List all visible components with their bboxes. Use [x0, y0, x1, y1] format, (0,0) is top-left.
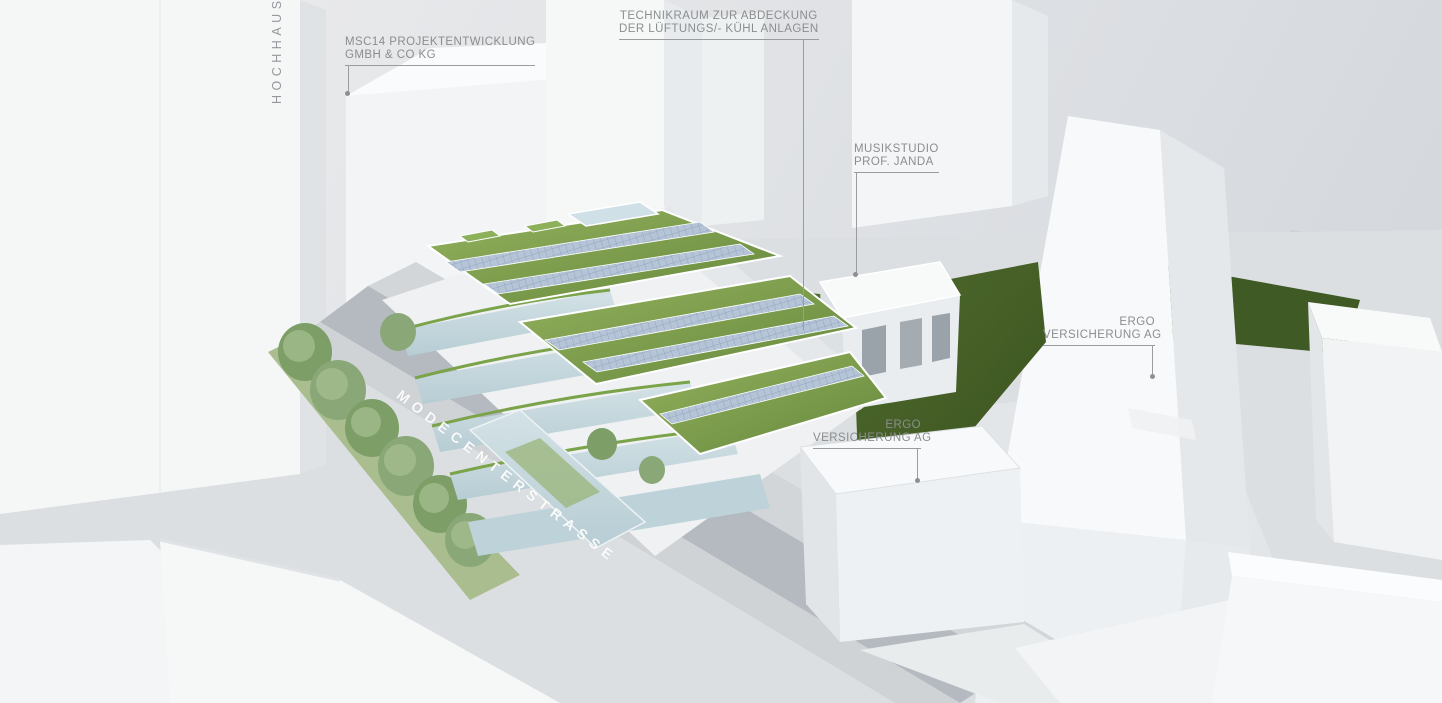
ergo-right-line2: VERSICHERUNG AG	[1043, 329, 1155, 342]
leader-musikstudio	[856, 173, 857, 274]
musikstudio-line2: PROF. JANDA	[854, 156, 939, 169]
callout-technikraum: TECHNIKRAUM ZUR ABDECKUNG DER LÜFTUNGS/-…	[619, 10, 819, 40]
street-name-text: MODECENTERSTRASSE	[393, 388, 620, 567]
technikraum-line2: DER LÜFTUNGS/- KÜHL ANLAGEN	[619, 23, 819, 36]
leader-dot-musikstudio	[853, 272, 858, 277]
leader-ergo-center	[917, 449, 918, 480]
leader-technikraum	[803, 40, 804, 330]
msc14-line2: GMBH & CO KG	[345, 49, 535, 62]
callout-ergo-right: ERGO VERSICHERUNG AG	[1043, 316, 1155, 346]
architectural-site-rendering: HOCHHAUS MSC14 PROJEKTENTWICKLUNG GMBH &…	[0, 0, 1442, 703]
msc14-line1: MSC14 PROJEKTENTWICKLUNG	[345, 36, 535, 49]
callout-musikstudio: MUSIKSTUDIO PROF. JANDA	[854, 143, 939, 173]
ergo-right-line1: ERGO	[1043, 316, 1155, 329]
ergo-center-line1: ERGO	[813, 419, 921, 432]
musikstudio-line1: MUSIKSTUDIO	[854, 143, 939, 156]
hochhaus-text: HOCHHAUS	[270, 0, 284, 104]
leader-msc14	[348, 66, 349, 94]
annotation-overlay: HOCHHAUS MSC14 PROJEKTENTWICKLUNG GMBH &…	[0, 0, 1442, 703]
leader-dot-ergo-center	[915, 478, 920, 483]
technikraum-line1: TECHNIKRAUM ZUR ABDECKUNG	[619, 10, 819, 23]
leader-ergo-right	[1152, 346, 1153, 376]
leader-dot-ergo-right	[1150, 374, 1155, 379]
callout-ergo-center: ERGO VERSICHERUNG AG	[813, 419, 921, 449]
callout-msc14: MSC14 PROJEKTENTWICKLUNG GMBH & CO KG	[345, 36, 535, 66]
label-hochhaus: HOCHHAUS	[270, 4, 284, 104]
street-name-label: MODECENTERSTRASSE	[393, 388, 620, 567]
leader-dot-msc14	[345, 91, 350, 96]
ergo-center-line2: VERSICHERUNG AG	[813, 432, 921, 445]
